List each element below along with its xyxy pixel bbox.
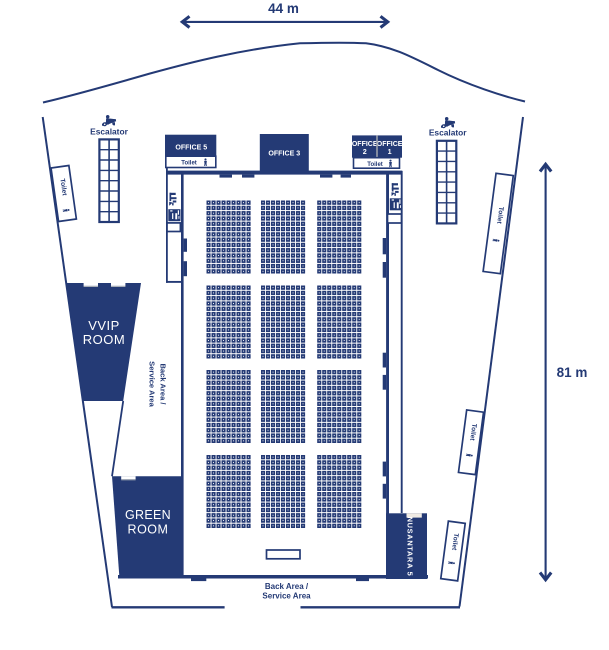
svg-text:ROOM: ROOM	[83, 332, 125, 347]
svg-text:GREEN: GREEN	[125, 508, 171, 522]
svg-text:2: 2	[363, 147, 367, 156]
svg-text:81 m: 81 m	[557, 365, 588, 380]
svg-text:Back Area /Service Area: Back Area /Service Area	[148, 361, 168, 408]
svg-text:Service Area: Service Area	[262, 592, 311, 601]
svg-text:44 m: 44 m	[268, 1, 299, 16]
svg-text:OFFICE 5: OFFICE 5	[175, 144, 207, 152]
svg-text:Escalator: Escalator	[429, 128, 467, 138]
svg-text:Toilet: Toilet	[367, 162, 383, 168]
svg-text:Escalator: Escalator	[90, 127, 128, 137]
svg-text:Back Area /: Back Area /	[265, 582, 309, 591]
svg-text:Toilet: Toilet	[181, 161, 197, 167]
svg-text:NUSANTARA 5: NUSANTARA 5	[406, 517, 415, 577]
svg-text:OFFICE 3: OFFICE 3	[268, 150, 300, 158]
svg-text:ROOM: ROOM	[128, 523, 169, 537]
svg-text:VVIP: VVIP	[88, 318, 120, 333]
svg-text:1: 1	[388, 147, 392, 156]
